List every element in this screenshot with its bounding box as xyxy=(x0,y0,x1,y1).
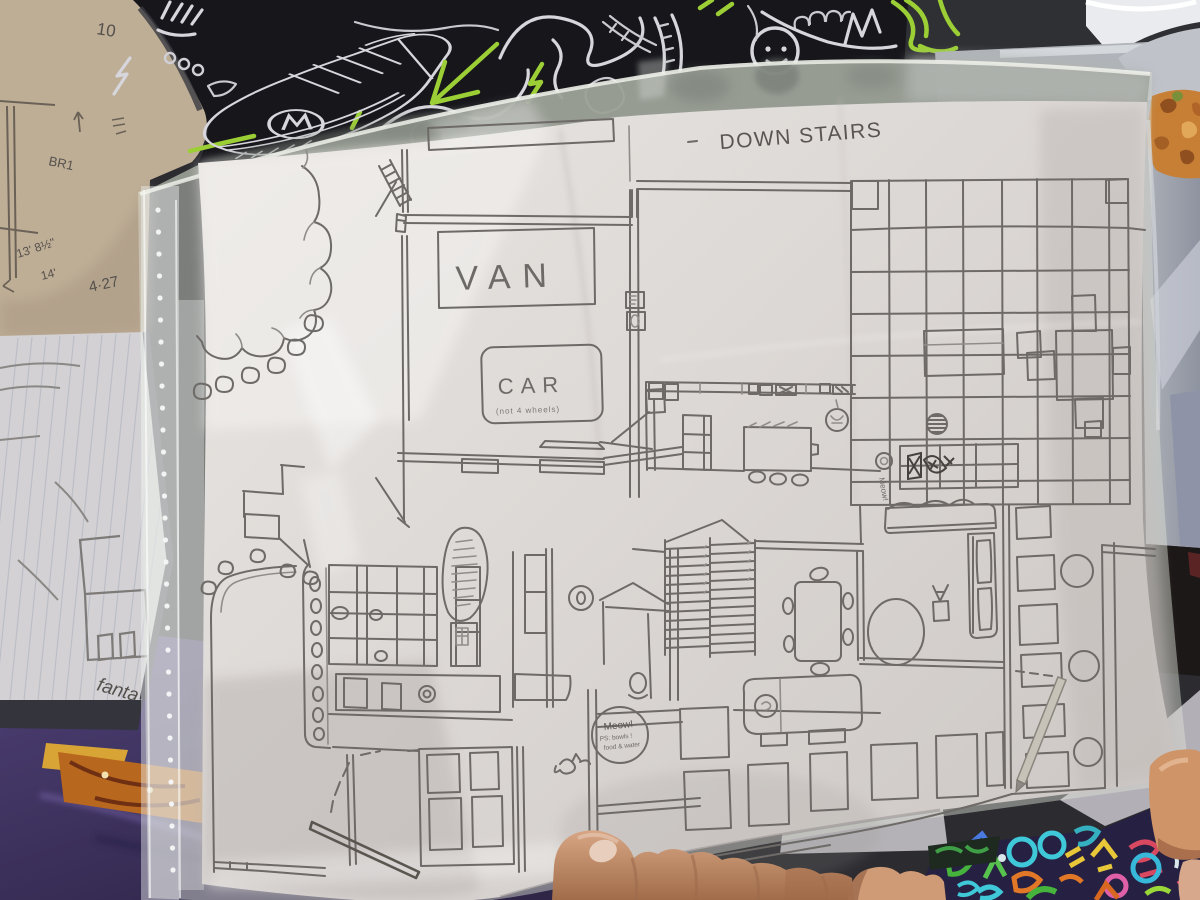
svg-text:CAR: CAR xyxy=(497,372,565,399)
svg-text:10: 10 xyxy=(95,19,117,41)
svg-text:VAN: VAN xyxy=(455,256,560,298)
